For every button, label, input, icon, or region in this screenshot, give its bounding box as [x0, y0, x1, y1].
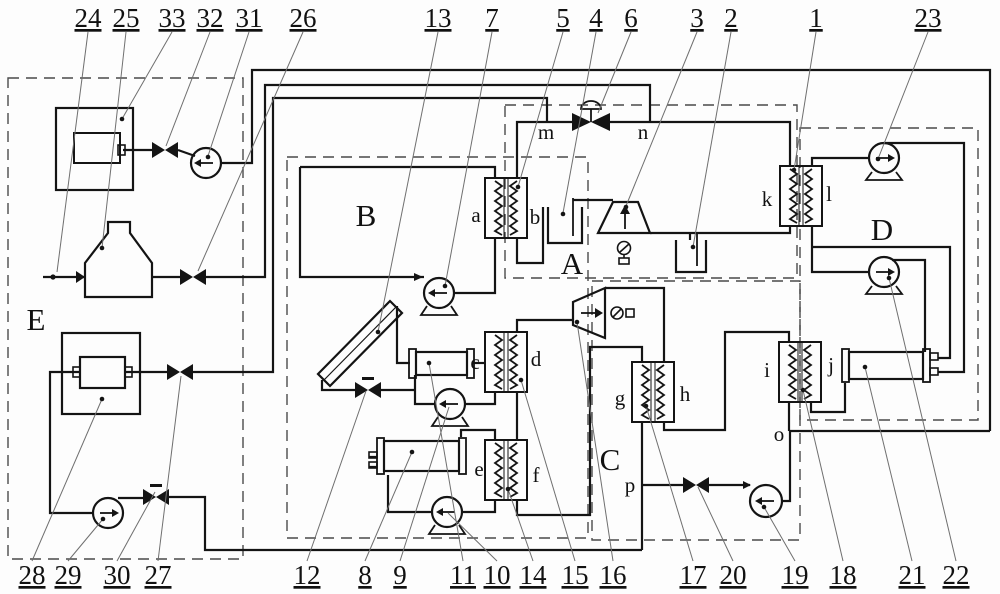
- label-20: 20: [720, 560, 747, 590]
- label-31: 31: [236, 3, 263, 33]
- turbine-3: [598, 202, 650, 264]
- turbine-16: [573, 288, 634, 338]
- port-label-n: n: [638, 120, 649, 144]
- leader-lines: [32, 32, 956, 561]
- port-label-o: o: [774, 422, 785, 446]
- port-label-d: d: [531, 347, 542, 371]
- label-15: 15: [562, 560, 589, 590]
- label-18: 18: [830, 560, 857, 590]
- label-7: 7: [485, 3, 499, 33]
- flow-arrow: [76, 271, 85, 283]
- port-label-f: f: [533, 463, 540, 487]
- valve-20: [683, 477, 709, 493]
- port-label-b: b: [530, 205, 541, 229]
- label-1: 1: [809, 3, 823, 33]
- storage-cylinder-21: [842, 349, 938, 382]
- pump-29: [93, 498, 123, 528]
- label-5: 5: [556, 3, 570, 33]
- heat-exchanger-ab: [485, 178, 527, 238]
- heat-exchanger-cd: [485, 332, 527, 392]
- port-label-p: p: [625, 473, 636, 497]
- label-9: 9: [393, 560, 407, 590]
- valve-26: [180, 269, 206, 285]
- label-22: 22: [943, 560, 970, 590]
- port-label-j: j: [827, 353, 834, 377]
- region-label-C: C: [600, 442, 621, 477]
- port-label-c: c: [470, 350, 479, 374]
- port-label-i: i: [764, 358, 770, 382]
- region-label-B: B: [356, 198, 377, 233]
- pump-31: [191, 148, 221, 178]
- label-32: 32: [197, 3, 224, 33]
- pump-19: [743, 481, 782, 517]
- label-8: 8: [358, 560, 372, 590]
- region-label-D: D: [871, 212, 893, 247]
- heat-exchanger-gh: [632, 362, 674, 422]
- label-21: 21: [899, 560, 926, 590]
- label-30: 30: [104, 560, 131, 590]
- label-17: 17: [680, 560, 707, 590]
- storage-cylinder-11: [409, 349, 474, 378]
- label-6: 6: [624, 3, 638, 33]
- heat-exchanger-ef: [485, 440, 527, 500]
- label-10: 10: [484, 560, 511, 590]
- pipe-network: [43, 70, 990, 550]
- port-label-l: l: [826, 182, 832, 206]
- port-label-e: e: [474, 457, 483, 481]
- label-33: 33: [159, 3, 186, 33]
- port-label-g: g: [615, 386, 626, 410]
- label-26: 26: [290, 3, 317, 33]
- region-label-A: A: [561, 246, 584, 281]
- furnace: [85, 222, 152, 297]
- label-27: 27: [145, 560, 172, 590]
- label-14: 14: [520, 560, 548, 590]
- label-19: 19: [782, 560, 809, 590]
- port-label-m: m: [538, 120, 554, 144]
- solar-collector: [318, 301, 402, 386]
- label-2: 2: [724, 3, 738, 33]
- pump-9: [432, 389, 468, 426]
- schematic-canvas: 24 25 33 32 31 26 13 7 5 4 6 3 2 1 23 28…: [0, 0, 1000, 594]
- label-12: 12: [294, 560, 321, 590]
- system-diagram: 24 25 33 32 31 26 13 7 5 4 6 3 2 1 23 28…: [0, 0, 1000, 594]
- storage-cylinder-8: [369, 438, 466, 474]
- label-16: 16: [600, 560, 627, 590]
- pump-7: [414, 273, 457, 315]
- label-24: 24: [75, 3, 103, 33]
- label-11: 11: [450, 560, 476, 590]
- label-28: 28: [19, 560, 46, 590]
- label-25: 25: [113, 3, 140, 33]
- pump-23: [866, 143, 902, 180]
- valve-32: [152, 142, 178, 158]
- pump-10: [429, 497, 465, 534]
- port-label-k: k: [762, 187, 773, 211]
- label-13: 13: [425, 3, 452, 33]
- port-label-h: h: [680, 382, 691, 406]
- label-4: 4: [589, 3, 603, 33]
- heat-exchanger-kl: [780, 166, 822, 226]
- valve-12: [355, 377, 381, 398]
- port-label-a: a: [471, 203, 481, 227]
- label-29: 29: [55, 560, 82, 590]
- label-23: 23: [915, 3, 942, 33]
- pump-22: [866, 257, 902, 294]
- valve-27: [167, 364, 193, 380]
- label-3: 3: [690, 3, 704, 33]
- region-label-E: E: [27, 302, 46, 337]
